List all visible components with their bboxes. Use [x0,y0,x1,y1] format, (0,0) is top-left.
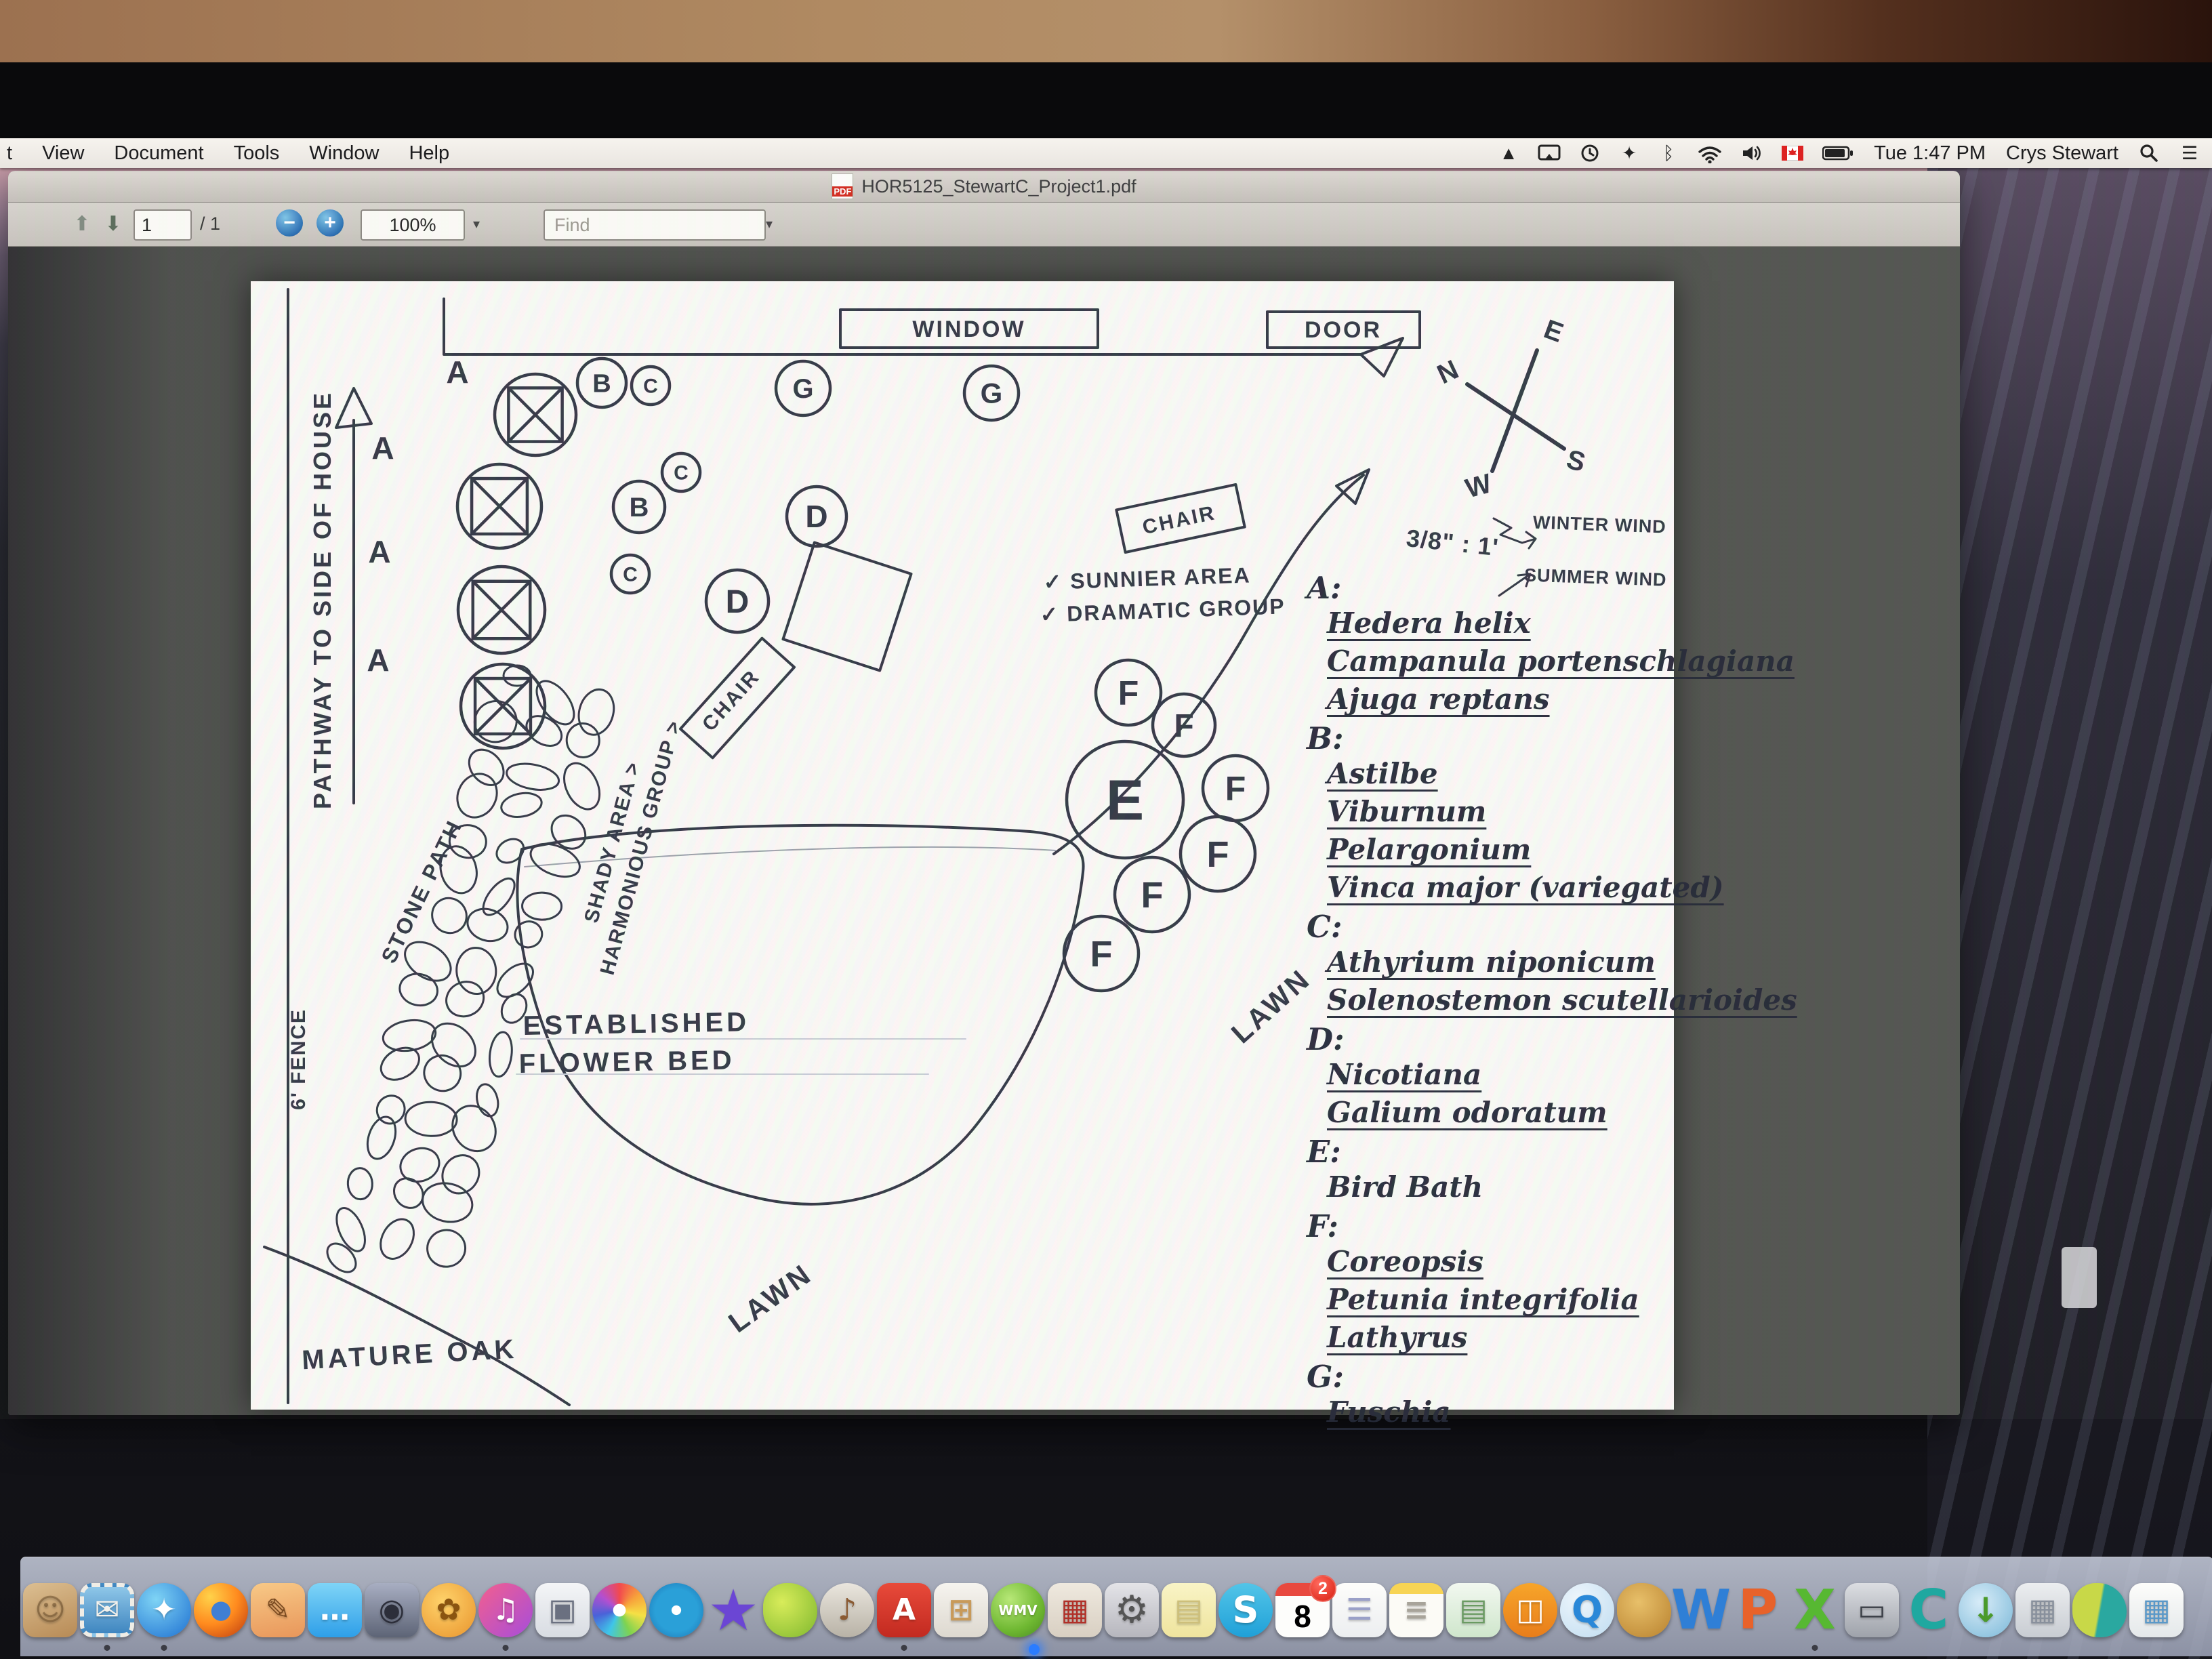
stone-pebble [487,1031,514,1078]
dock-icon-flip4mac-wmv[interactable]: WMV [991,1583,1045,1637]
dock-icon-excel[interactable]: X [1788,1583,1842,1637]
svg-text:F: F [1207,834,1229,875]
svg-text:C: C [623,564,638,586]
next-page-button[interactable]: ⬇ [99,209,127,238]
chameleon-tile [763,1583,817,1637]
stone-pebble [419,1179,476,1227]
svg-text:D: D [726,584,750,620]
plan-label: ✓ DRAMATIC GROUP [1040,594,1286,627]
stone-pebble [374,1213,421,1265]
running-indicator-dot [503,1645,509,1651]
dock-icon-chameleon[interactable] [763,1583,817,1637]
itunes-glyph: ♫ [492,1595,518,1625]
dvd-player-tile [649,1583,703,1637]
dock-icon-dvd-player[interactable] [649,1583,703,1637]
plant-name: Astilbe [1327,758,1438,790]
input-flag-canada-icon[interactable] [1782,146,1803,161]
window-title: HOR5125_StewartC_Project1.pdf [861,176,1136,197]
dock-icon-calendar[interactable]: 82 [1275,1583,1330,1637]
plant-name: Ajuga reptans [1327,684,1550,715]
plant-list: A:Hedera helixCampanula portenschlagiana… [1307,571,1673,1435]
airplay-icon[interactable]: ▲ [1498,143,1519,164]
photo-stack-glyph: ⊞ [949,1595,974,1625]
stone-pebble [435,1148,487,1200]
stone-pebble [388,1172,429,1214]
page-number-input[interactable]: 1 [134,209,192,241]
dock-icon-preview[interactable]: ✎ [251,1583,305,1637]
dock-icon-quicktime[interactable]: Q [1560,1583,1614,1637]
pdf-toolbar: ⬆ ⬇ 1 / 1 − + 100% ▾ Find ▾ [8,203,1960,247]
stone-pebble [322,1238,361,1277]
wifi-icon[interactable] [1698,143,1722,163]
plant-marker-B: B [613,481,665,533]
display-app-glyph: ▦ [2028,1595,2057,1625]
messages-glyph: … [320,1595,350,1625]
ibooks-glyph: ◫ [1516,1595,1544,1625]
plan-label: CHAIR [1141,501,1218,539]
zoom-caret-icon[interactable]: ▾ [466,209,487,238]
image-capture-glyph: ▣ [548,1595,577,1625]
plant-name: Nicotiana [1327,1059,1481,1090]
dock-icon-camtasia[interactable]: C [1902,1583,1956,1637]
dock-icon-photo-booth[interactable]: ◉ [365,1583,419,1637]
stone-pebble [493,834,528,867]
dock-icon-ovation-star[interactable]: ★ [706,1583,760,1637]
photo-booth-glyph: ◉ [379,1595,405,1625]
plant-list-section-D: D: [1307,1023,1673,1057]
plan-label: W [1462,468,1495,504]
photos-tile [592,1583,647,1637]
stone-pebble [504,760,560,794]
menu-item-partial[interactable]: t [7,142,12,165]
stone-pebble [425,1227,468,1269]
zoom-in-button[interactable]: + [316,209,344,237]
dock-icon-photos[interactable] [592,1583,647,1637]
stone-pebble [425,891,473,939]
plan-label: WINDOW [912,316,1025,342]
stone-pebble [557,758,607,815]
plant-list-section-A: A: [1307,571,1673,605]
menu-clock[interactable]: Tue 1:47 PM [1874,142,1986,165]
dock-icon-photo-frame[interactable]: ▦ [2129,1583,2184,1637]
plan-label: LAWN [1225,962,1317,1049]
notification-badge: 2 [1309,1575,1336,1602]
dock-icon-reminders[interactable]: ☰ [1332,1583,1387,1637]
quicktime-glyph: Q [1572,1592,1603,1629]
dock-icon-messages[interactable]: … [308,1583,362,1637]
display-mirroring-icon[interactable] [1538,144,1561,162]
plant-marker-C: C [611,555,649,593]
wallpaper-cliffs [1927,168,2212,1659]
desk-surface [0,0,2212,62]
notes-doc-glyph: ▤ [1459,1595,1488,1625]
plant-list-section-E: E: [1307,1135,1673,1169]
plant-name: Campanula portenschlagiana [1327,646,1795,677]
stone-pebble [512,918,546,951]
stone-pebble [405,1101,457,1137]
dock-icon-notes-doc[interactable]: ▤ [1446,1583,1500,1637]
plan-label: A [367,642,389,678]
zoom-out-button[interactable]: − [276,209,303,237]
spotlight-icon[interactable] [2139,144,2159,163]
running-indicator-dot [104,1645,110,1651]
wall-end-arrow-icon [1361,338,1403,376]
dock-icon-remote-desktop[interactable]: ▭ [1845,1583,1899,1637]
dock-icon-garageband[interactable]: ♪ [820,1583,874,1637]
plant-name: Solenostemon scutellarioides [1327,985,1797,1016]
svg-text:F: F [1174,708,1193,744]
dock-icon-textedit[interactable]: ≡ [1389,1583,1443,1637]
menu-items: tViewDocumentToolsWindowHelp [0,142,449,165]
plan-label: E [1540,314,1567,348]
menu-item-help[interactable]: Help [409,142,449,165]
dock-icon-mail[interactable]: ✉ [80,1583,134,1637]
dock-icon-word[interactable]: W [1674,1583,1728,1637]
dock-icon-safari[interactable]: ✦ [137,1583,191,1637]
stone-pebble [526,838,584,883]
plant-marker-E: E [1067,741,1183,858]
menu-item-view[interactable]: View [42,142,84,165]
svg-text:C: C [674,462,689,485]
plan-label: S [1563,445,1589,478]
svg-text:B: B [592,369,611,398]
blue-led-dot [1029,1644,1040,1655]
svg-text:F: F [1141,875,1164,916]
garageband-glyph: ♪ [838,1595,857,1625]
plant-name: Viburnum [1327,796,1486,827]
dock: ☺✉✦✎…◉✿♫▣★♪A⊞WMV▦⚙▤S82☰≡▤◫QWPX▭C↓▦▦ [20,1557,2212,1656]
mail-glyph: ✉ [95,1595,120,1625]
house-wall-line [444,299,1362,354]
plant-name: Lathyrus [1327,1322,1467,1353]
wallpaper-highlight [2062,1247,2097,1308]
dock-icon-firefox[interactable] [194,1583,248,1637]
dock-icon-system-preferences[interactable]: ⚙ [1105,1583,1159,1637]
plan-label: 3/8" : 1' [1405,524,1500,561]
svg-text:B: B [630,493,649,523]
time-machine-icon[interactable] [1580,144,1600,163]
dock-icon-adobe-reader[interactable]: A [877,1583,931,1637]
dock-icon-stickies[interactable]: ▤ [1162,1583,1216,1637]
menu-item-document[interactable]: Document [114,142,203,165]
plant-marker-F: F [1153,694,1215,756]
dock-icon-contacts[interactable]: ☺ [23,1583,77,1637]
dock-icon-people[interactable] [2072,1583,2127,1637]
stone-pebble [565,722,600,758]
plant-name: Fuschia [1327,1397,1451,1428]
system-preferences-glyph: ⚙ [1115,1591,1149,1629]
window-title-bar[interactable]: PDF HOR5125_StewartC_Project1.pdf [8,171,1960,203]
powerpoint-glyph: P [1738,1583,1778,1637]
page-total-label: / 1 [190,209,230,238]
plan-label: PATHWAY TO SIDE OF HOUSE [308,390,336,809]
menu-item-tools[interactable]: Tools [234,142,280,165]
screen-bezel [0,62,2212,138]
plan-label: 6' FENCE [287,1008,310,1110]
plant-marker-C: C [662,453,700,491]
plan-label: LAWN [722,1257,818,1338]
reminders-glyph: ☰ [1346,1595,1372,1625]
people-tile [2072,1583,2127,1637]
dock-icon-photo-stack[interactable]: ⊞ [934,1583,988,1637]
table-diamond [783,542,911,670]
stone-pebble [499,790,544,820]
plant-list-section-G: G: [1307,1360,1673,1394]
plant-name: Coreopsis [1327,1246,1483,1277]
mature-oak-canopy-line [264,1247,569,1405]
volume-icon[interactable] [1741,144,1763,162]
tree-marker-A [457,464,541,548]
find-caret-icon[interactable]: ▾ [759,209,779,238]
find-input[interactable]: Find [544,209,766,241]
excel-glyph: X [1794,1583,1836,1637]
running-indicator-dot [161,1645,167,1651]
plant-marker-C: C [632,367,670,405]
stickies-glyph: ▤ [1174,1595,1203,1625]
svg-text:F: F [1118,674,1139,712]
plant-name: Pelargonium [1327,834,1531,865]
stone-pebble [522,893,562,920]
svg-text:D: D [805,499,827,534]
menu-bar: tViewDocumentToolsWindowHelp ▲✦ᛒ Tue 1:4… [0,138,2212,168]
svg-text:G: G [981,377,1003,409]
photo-frame-glyph: ▦ [2142,1595,2171,1625]
running-indicator-dot [1812,1645,1818,1651]
tree-marker-A [495,374,576,455]
adobe-reader-glyph: A [893,1595,916,1625]
svg-text:G: G [792,374,813,404]
stone-pebble [464,904,512,946]
svg-text:E: E [1106,768,1144,832]
camera-app-glyph: ▦ [1061,1595,1089,1625]
remote-desktop-glyph: ▭ [1858,1595,1886,1625]
plant-marker-G: G [776,361,830,415]
flip4mac-wmv-glyph: WMV [998,1603,1037,1617]
plant-marker-B: B [577,359,626,407]
previous-page-button[interactable]: ⬆ [68,209,96,238]
calendar-day: 8 [1275,1598,1330,1635]
plant-name: Bird Bath [1327,1172,1483,1203]
bluetooth-icon[interactable]: ᛒ [1658,143,1679,164]
dock-icon-skype[interactable]: S [1218,1583,1273,1637]
plan-label: MATURE OAK [301,1334,518,1376]
menu-user[interactable]: Crys Stewart [2006,142,2118,165]
plant-name: Petunia integrifolia [1327,1284,1639,1315]
pdf-page: BBCCCDDGGEFFFFFFWINDOWDOORPATHWAY TO SID… [251,281,1674,1410]
zoom-level-select[interactable]: 100% [361,209,465,241]
skype-glyph: S [1233,1592,1259,1629]
dock-icon-itunes[interactable]: ♫ [478,1583,533,1637]
stone-pebble [347,1168,373,1200]
word-glyph: W [1671,1583,1731,1637]
compass-cross [1467,350,1564,471]
plan-label: A [371,430,394,466]
plant-list-section-B: B: [1307,722,1673,756]
stone-pebble [462,743,511,792]
menu-bar-status: ▲✦ᛒ Tue 1:47 PM Crys Stewart ☰ [1498,142,2212,165]
stone-pebble [419,1050,466,1097]
plant-marker-G: G [964,366,1019,420]
plant-marker-F: F [1181,817,1255,891]
notification-center-icon[interactable]: ☰ [2179,143,2200,164]
contacts-glyph: ☺ [35,1595,66,1625]
dock-icon-toy-lion[interactable] [1617,1583,1671,1637]
svg-text:F: F [1090,934,1113,975]
dock-icon-globe-download[interactable]: ↓ [1959,1583,2013,1637]
stone-pebble [371,1090,411,1129]
plant-name: Hedera helix [1327,608,1531,639]
plant-marker-F: F [1115,857,1189,932]
tree-marker-A [458,567,545,653]
globe-download-glyph: ↓ [1971,1593,2000,1627]
plant-list-section-F: F: [1307,1210,1673,1244]
running-indicator-dot [901,1645,907,1651]
toy-lion-tile [1617,1583,1671,1637]
pathway-arrow-icon [336,388,371,803]
plan-label: FLOWER BED [518,1045,735,1079]
plant-name: Athyrium niponicum [1327,947,1656,978]
svg-text:C: C [643,375,658,398]
menu-item-window[interactable]: Window [309,142,379,165]
plant-marker-F: F [1096,660,1161,725]
ovation-star-glyph: ★ [708,1582,758,1639]
firefox-tile [194,1583,248,1637]
textedit-glyph: ≡ [1404,1595,1429,1625]
dock-icon-ibooks[interactable]: ◫ [1503,1583,1557,1637]
plant-marker-F: F [1203,756,1268,821]
stone-pebble [444,1097,504,1160]
plan-label: A [446,354,468,390]
stone-pebble [450,767,504,824]
stone-pebble [424,1015,484,1075]
stone-pebble [396,1143,443,1187]
plan-label: DOOR [1305,317,1382,343]
plant-list-section-C: C: [1307,910,1673,944]
plan-label: N [1433,354,1463,390]
dock-icon-aperture-flower[interactable]: ✿ [422,1583,476,1637]
stone-pebble [491,958,539,1004]
status-icons: ▲✦ᛒ [1498,143,1853,164]
pdf-doc-icon: PDF [832,173,853,199]
plan-label: ✓ SUNNIER AREA [1043,562,1251,594]
plan-label: WINTER WIND [1532,512,1666,537]
plant-marker-D: D [706,570,769,632]
dock-icon-image-capture[interactable]: ▣ [535,1583,590,1637]
safari-glyph: ✦ [152,1595,177,1625]
stone-pebble [396,970,440,1009]
aperture-flower-glyph: ✿ [436,1595,462,1625]
svg-text:F: F [1225,770,1246,808]
dock-icon-camera-app[interactable]: ▦ [1048,1583,1102,1637]
plant-name: Vinca major (variegated) [1327,872,1724,903]
dock-icon-display-app[interactable]: ▦ [2015,1583,2070,1637]
plan-label: ESTABLISHED [523,1007,750,1041]
plan-label: CHAIR [698,665,764,736]
plant-name: Galium odoratum [1327,1097,1607,1128]
preview-glyph: ✎ [266,1595,291,1625]
dock-icon-powerpoint[interactable]: P [1731,1583,1785,1637]
plant-marker-F: F [1064,916,1139,991]
spark-icon[interactable]: ✦ [1619,143,1639,164]
plant-marker-D: D [787,487,846,546]
stone-pebble [455,947,497,996]
camtasia-glyph: C [1909,1583,1949,1637]
stone-pebble [545,808,592,855]
plan-label: A [368,534,390,569]
stone-pebble [331,1204,371,1255]
stone-pebble [441,976,489,1023]
battery-charging-icon[interactable] [1822,145,1853,161]
